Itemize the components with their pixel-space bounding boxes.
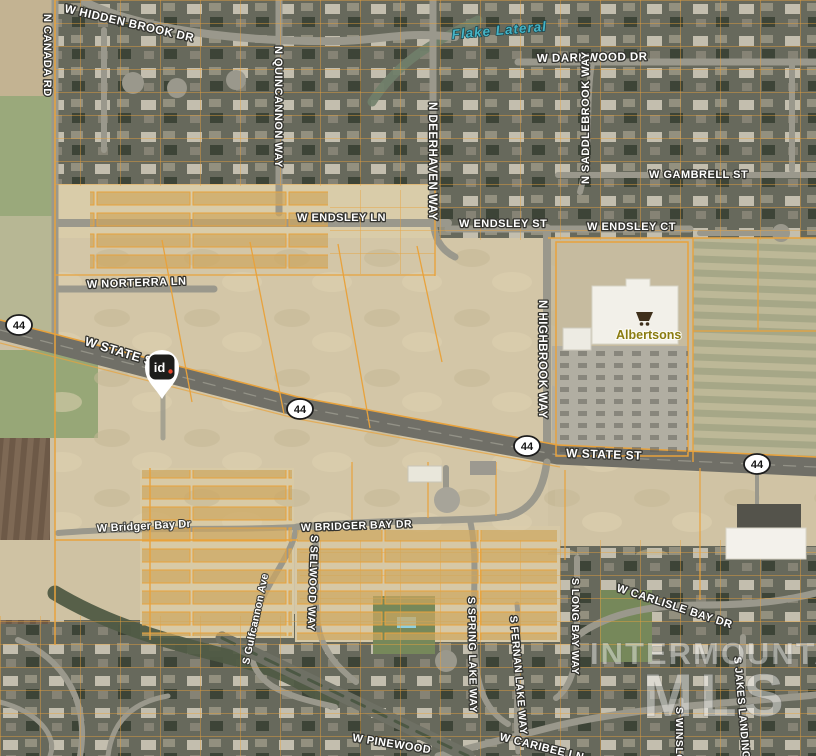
highway-44-shield: 44 — [514, 436, 540, 456]
watermark-line2: MLS — [643, 662, 791, 729]
street-label-w-endsley-ct: W ENDSLEY CT — [587, 221, 676, 233]
commercial-building — [470, 461, 496, 475]
street-label-s-long-bay-way: S LONG BAY WAY — [569, 578, 581, 675]
street-label-w-endsley-ln: W ENDSLEY LN — [297, 212, 386, 224]
street-label-w-gambrell-st: W GAMBRELL ST — [649, 169, 748, 181]
satellite-map-view[interactable]: W HIDDEN BROOK DR N CANADA RD Flake Late… — [0, 0, 816, 756]
shield-number: 44 — [751, 459, 764, 471]
albertsons-label: Albertsons — [616, 328, 681, 342]
highway-44-shield: 44 — [744, 454, 770, 474]
street-label-n-deerhaven-way: N DEERHAVEN WAY — [426, 102, 438, 221]
street-label-s-spring-lake-way: S SPRING LAKE WAY — [465, 597, 479, 713]
shield-number: 44 — [13, 320, 26, 332]
street-label-n-canada-rd: N CANADA RD — [41, 14, 53, 97]
shield-number: 44 — [294, 404, 307, 416]
street-label-n-highbrook-way: N HIGHBROOK WAY — [536, 300, 548, 419]
commercial-building — [408, 466, 442, 482]
highway-44-shield: 44 — [287, 399, 313, 419]
parking-lot — [552, 346, 688, 454]
street-label-w-darkwood-dr: W DARKWOOD DR — [537, 51, 648, 65]
street-label-n-quincannon-way: N QUINCANNON WAY — [272, 46, 284, 168]
dark-roof-building — [737, 504, 801, 531]
pin-red-dot — [168, 369, 172, 373]
street-label-w-endsley-st: W ENDSLEY ST — [459, 218, 547, 230]
highway-44-shield: 44 — [6, 315, 32, 335]
white-roof-building — [726, 528, 806, 559]
satellite-map[interactable]: W HIDDEN BROOK DR N CANADA RD Flake Late… — [0, 0, 816, 756]
street-label-n-saddlebrook-way: N SADDLEBROOK WAY — [580, 51, 592, 184]
street-label-w-state-st-right: W STATE ST — [566, 446, 642, 463]
shield-number: 44 — [521, 441, 534, 453]
pin-label: id — [154, 360, 166, 375]
